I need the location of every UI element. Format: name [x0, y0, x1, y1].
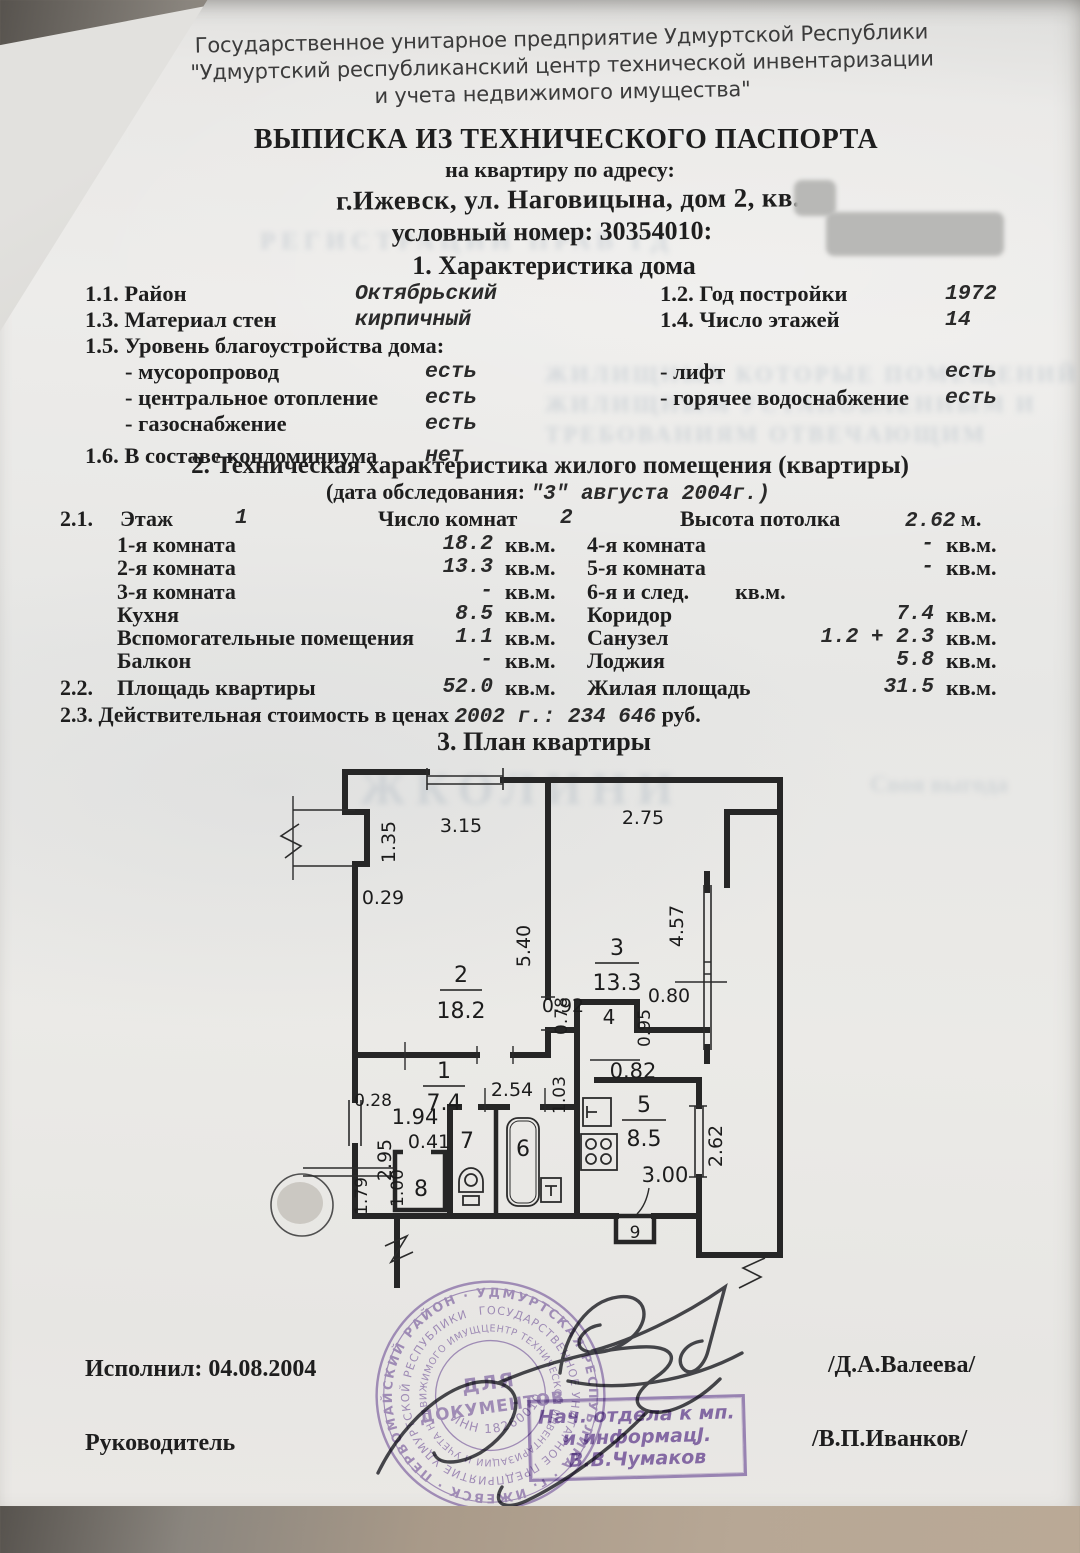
row-number: 2.3.: [60, 702, 93, 727]
row-label: Санузел: [573, 626, 811, 649]
room-number: 6: [516, 1137, 530, 1162]
room-number: 3: [610, 936, 624, 961]
row-value: 2002 г.: 234 646: [454, 706, 656, 729]
bathtub-icon: [507, 1118, 539, 1206]
unit-label: руб.: [662, 702, 701, 727]
sink-icon: [541, 1178, 561, 1202]
section1-heading: 1. Характеристика дома: [14, 251, 1080, 281]
row-value: -: [811, 556, 934, 579]
dim-label: 0.41: [408, 1131, 450, 1153]
row-value: 13.3: [409, 556, 493, 579]
table-row: 2-я комната 13.3 кв.м. 5-я комната - кв.…: [60, 556, 1050, 579]
room-area: 18.2: [437, 999, 486, 1024]
redaction-blur-apartment: [794, 180, 836, 216]
erased-stamp-mark: [271, 1174, 333, 1236]
row-label: 5-я комната: [573, 556, 811, 579]
row-value: есть: [945, 385, 1025, 411]
row-label: 2-я комната: [117, 556, 409, 579]
table-row: - газоснабжение есть: [85, 411, 1025, 437]
row-label: 1.1. Район: [85, 281, 355, 307]
row-label: 6-я и след.кв.м.: [573, 580, 811, 603]
unit-label: кв.м.: [934, 626, 1050, 649]
row-value: 1.1: [409, 626, 493, 649]
table-row: - центральное отопление есть - горячее в…: [85, 385, 1025, 411]
table-row: 3-я комната - кв.м. 6-я и след.кв.м.: [60, 580, 1050, 603]
section2-table: 2.1. Этаж 1 Число комнат 2 Высота потолк…: [60, 507, 1050, 729]
row-value: 5.8: [811, 649, 934, 672]
head-label: Руководитель: [85, 1430, 235, 1457]
room-area: 13.3: [593, 971, 642, 996]
document-title: ВЫПИСКА ИЗ ТЕХНИЧЕСКОГО ПАСПОРТА: [26, 124, 1080, 156]
row-label: - мусоропровод: [85, 359, 425, 385]
row-value: 8.5: [409, 603, 493, 626]
head-signature: [378, 1347, 720, 1506]
executor-name: /Д.А.Валеева/: [828, 1352, 975, 1379]
toilet-icon: [459, 1168, 483, 1205]
dim-label: 2.62: [705, 1125, 727, 1167]
executor-signature: [560, 1287, 742, 1386]
dim-label: 4.57: [666, 905, 688, 947]
row-value: 2: [560, 507, 680, 533]
row-value: 1972: [945, 281, 1025, 307]
row-number: 2.2.: [60, 676, 117, 699]
room-number: 1: [437, 1059, 451, 1084]
table-row: 2.2. Площадь квартиры 52.0 кв.м. Жилая п…: [60, 676, 1050, 699]
row-label: 4-я комната: [573, 533, 811, 556]
dim-label: 1.94: [392, 1105, 439, 1129]
row-value: есть: [425, 359, 660, 385]
signatures: [330, 1275, 800, 1506]
table-row: 1-я комната 18.2 кв.м. 4-я комната - кв.…: [60, 533, 1050, 556]
row-value: -: [409, 649, 493, 672]
row-label: Высота потолка: [680, 507, 905, 533]
row-value: 2.62 м.: [905, 507, 1050, 533]
row-label: - центральное отопление: [85, 385, 425, 411]
row-label: - газоснабжение: [85, 411, 425, 437]
executed-by-label: Исполнил: 04.08.2004: [85, 1356, 316, 1383]
unit-label: кв.м.: [493, 556, 573, 579]
unit-label: кв.м.: [934, 603, 1050, 626]
row-value: 31.5: [811, 676, 934, 699]
dim-label: 0.28: [354, 1091, 392, 1111]
row-label: Балкон: [117, 649, 409, 672]
unit-label: кв.м.: [493, 626, 573, 649]
row-label: Жилая площадь: [573, 676, 811, 699]
unit-label: кв.м.: [934, 649, 1050, 672]
row-value: 1.2 + 2.3: [811, 626, 934, 649]
row-label: 1.3. Материал стен: [85, 307, 355, 333]
row-number: 2.1.: [60, 507, 120, 533]
dim-label: 1.00: [388, 1169, 408, 1207]
head-name: /В.П.Иванков/: [812, 1426, 967, 1453]
vent-label: 9: [630, 1223, 641, 1243]
unit-label: кв.м.: [493, 580, 573, 603]
row-value: -: [811, 533, 934, 556]
unit-label: кв.м.: [493, 649, 573, 672]
table-row: 1.1. Район Октябрьский 1.2. Год постройк…: [85, 281, 1025, 307]
dim-label: 0.80: [648, 985, 690, 1007]
row-value: 52.0: [409, 676, 493, 699]
unit-label: кв.м.: [934, 533, 1050, 556]
unit-label: кв.м.: [493, 603, 573, 626]
row-label: Лоджия: [573, 649, 811, 672]
fixtures: [459, 1098, 617, 1206]
room-number: 8: [414, 1177, 428, 1202]
table-row: 2.3. Действительная стоимость в ценах 20…: [60, 703, 1050, 729]
row-value: 1: [235, 507, 378, 533]
document-paper: РЕГИСТРАЦИИ ПРАВ ГД ЖИЛИЩНЫХ КОТОРЫЕ ПОМ…: [0, 0, 1080, 1506]
table-row: 2.1. Этаж 1 Число комнат 2 Высота потолк…: [60, 507, 1050, 533]
row-value: есть: [425, 411, 660, 437]
room-area: 8.5: [627, 1127, 662, 1152]
row-value: есть: [945, 359, 1025, 385]
row-value: 7.4: [811, 603, 934, 626]
row-label: Площадь квартиры: [117, 676, 409, 699]
room-number: 5: [637, 1093, 651, 1118]
row-label: Число комнат: [378, 507, 560, 533]
dim-label: 0.95: [635, 1009, 655, 1047]
row-label: Кухня: [117, 603, 409, 626]
table-row: Балкон - кв.м. Лоджия 5.8 кв.м.: [60, 649, 1050, 672]
row-value: Октябрьский: [355, 281, 660, 307]
ghost-bleed-text: Своя выгода: [870, 772, 1008, 799]
dim-label: 3.15: [440, 815, 482, 837]
dim-label: 5.40: [513, 925, 535, 967]
room-number: 7: [460, 1129, 474, 1154]
dim-label: 2.54: [491, 1079, 533, 1101]
unit-label: кв.м.: [934, 676, 1050, 699]
redaction-blur-number: [826, 212, 1004, 256]
dim-label: 0.82: [610, 1059, 657, 1083]
row-value: 14: [945, 307, 1025, 333]
unit-label: кв.м.: [934, 556, 1050, 579]
unit-label: кв.м.: [493, 533, 573, 556]
row-value: 18.2: [409, 533, 493, 556]
dim-label: 0.78: [552, 997, 572, 1035]
dim-label: 0.29: [362, 887, 404, 909]
row-label: Действительная стоимость в ценах: [99, 702, 449, 727]
row-label: 3-я комната: [117, 580, 409, 603]
dim-label: 2.75: [622, 807, 664, 829]
row-label: 1-я комната: [117, 533, 409, 556]
dim-label: 1.35: [378, 821, 400, 863]
row-label: Этаж: [120, 507, 235, 533]
kitchen-sink-icon: [583, 1098, 611, 1126]
row-label: 1.2. Год постройки: [660, 281, 945, 307]
dim-label: 1.03: [550, 1076, 570, 1114]
room-number: 2: [454, 963, 468, 988]
dim-label: 1.79: [352, 1177, 372, 1215]
unit-label: кв.м.: [493, 676, 573, 699]
row-label: Вспомогательные помещения: [117, 626, 409, 649]
dim-label: 3.00: [642, 1163, 689, 1187]
row-value: -: [409, 580, 493, 603]
section2-heading: 2. Техническая характеристика жилого пом…: [10, 452, 1080, 480]
table-row: Вспомогательные помещения 1.1 кв.м. Сану…: [60, 626, 1050, 649]
row-label: 1.4. Число этажей: [660, 307, 945, 333]
row-label: - лифт: [660, 359, 945, 385]
table-row: - мусоропровод есть - лифт есть: [85, 359, 1025, 385]
section1-table: 1.1. Район Октябрьский 1.2. Год постройк…: [85, 281, 1025, 469]
document-subtitle: на квартиру по адресу:: [20, 157, 1080, 183]
row-value: есть: [425, 385, 660, 411]
amenities-heading: 1.5. Уровень благоустройства дома:: [85, 333, 1025, 359]
survey-date: (дата обследования: "3" августа 2004г.): [8, 479, 1080, 506]
row-label: Коридор: [573, 603, 811, 626]
room-number: 4: [603, 1005, 616, 1029]
table-row: 1.3. Материал стен кирпичный 1.4. Число …: [85, 307, 1025, 333]
table-row: Кухня 8.5 кв.м. Коридор 7.4 кв.м.: [60, 603, 1050, 626]
row-value: кирпичный: [355, 307, 660, 333]
row-label: - горячее водоснабжение: [660, 385, 945, 411]
stove-icon: [581, 1134, 617, 1170]
